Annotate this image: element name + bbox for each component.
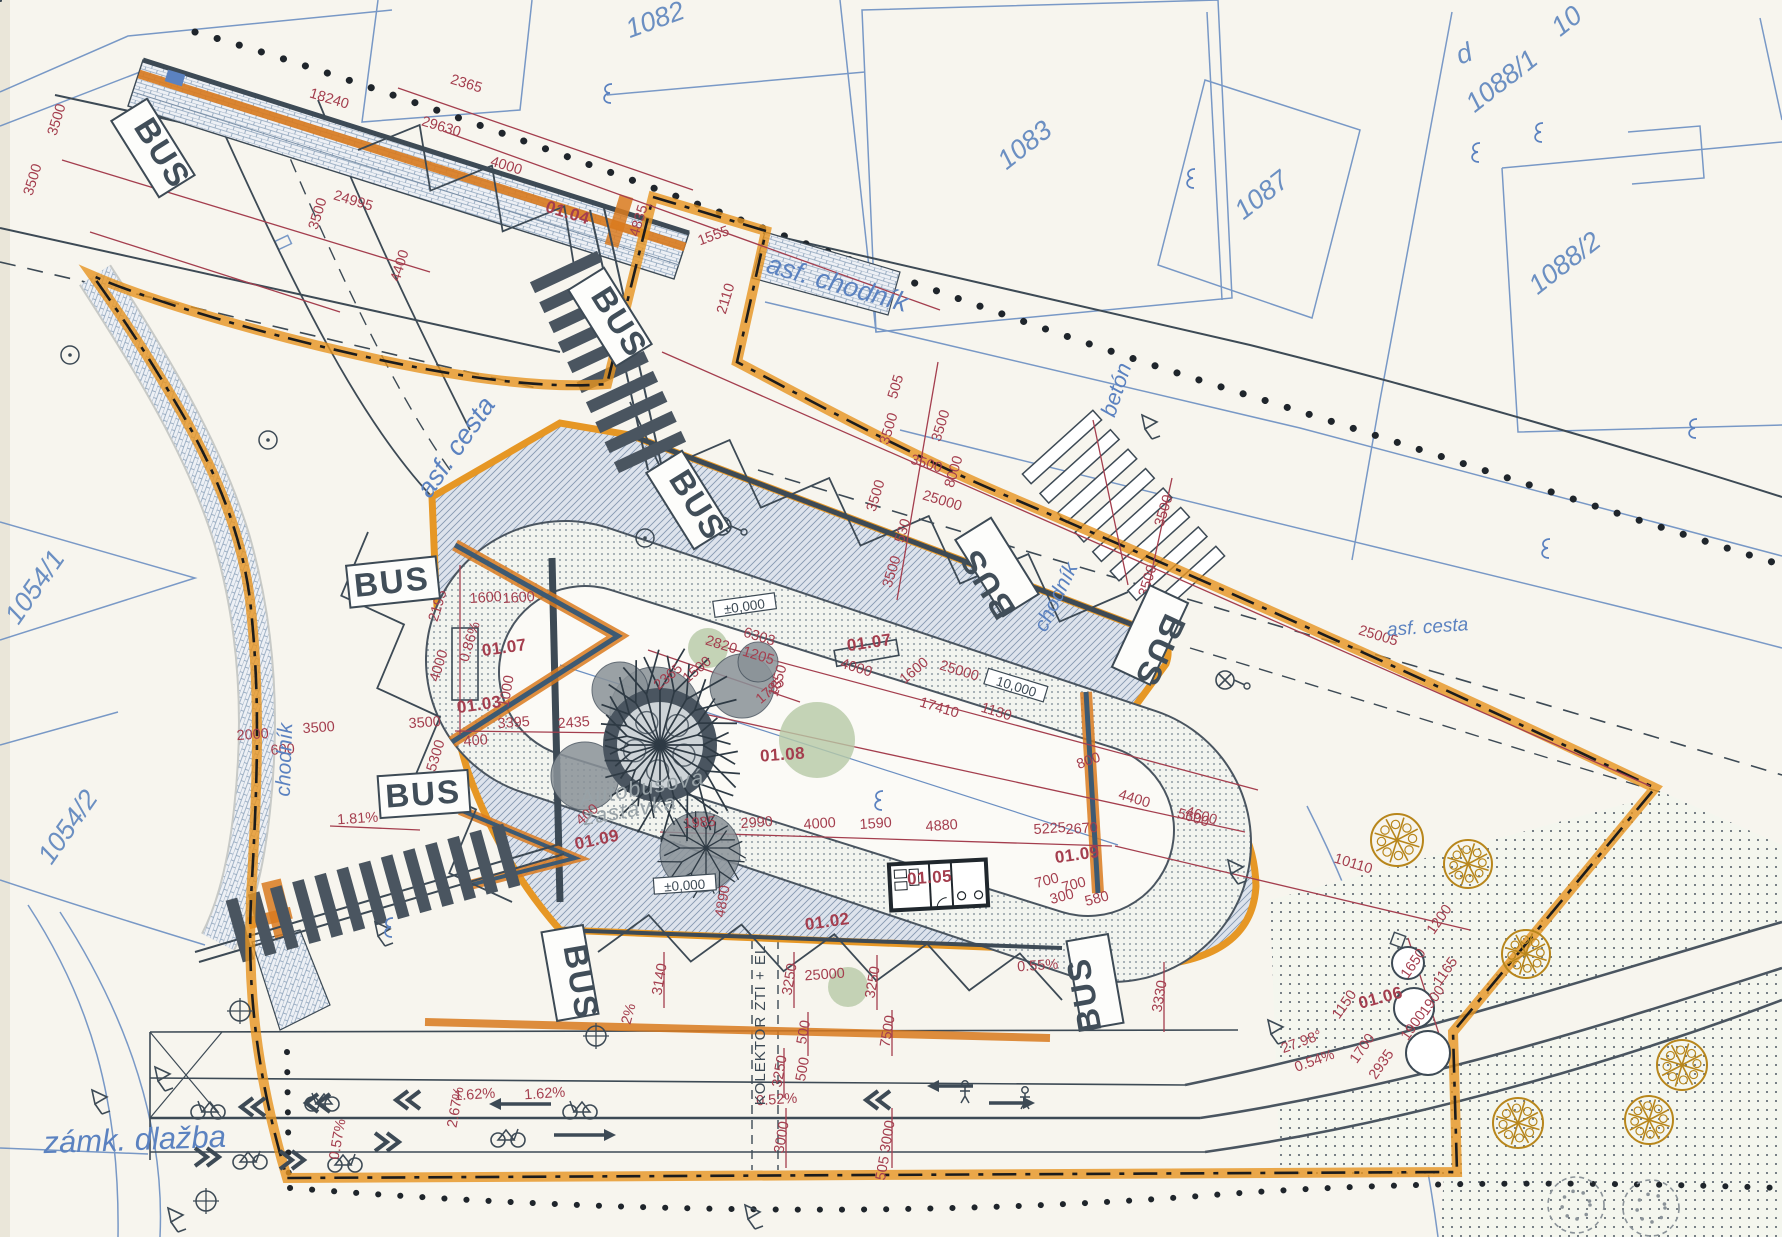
tree-dot	[1560, 1205, 1564, 1209]
dimension-label: 0.55%	[1017, 957, 1059, 976]
tree-dot	[1588, 1203, 1592, 1207]
dimension-label: 1.62%	[524, 1085, 566, 1104]
dimension-label: 400	[463, 732, 488, 750]
dimension-label: 3500	[408, 714, 441, 732]
tree-dot	[1565, 1214, 1569, 1218]
tree-dot	[1640, 1217, 1644, 1221]
level-mark-label: ±0,000	[664, 877, 706, 895]
bus-stop-label: BUS	[352, 559, 431, 604]
dimension-label: 2000	[236, 726, 269, 744]
dimension-label: 3395	[497, 714, 530, 732]
dimension-label: 3500	[302, 719, 335, 737]
tree-dot	[1584, 1213, 1588, 1217]
tree-dot	[1646, 1193, 1650, 1197]
tree-dot	[1656, 1194, 1660, 1198]
tree-dot	[1650, 1220, 1654, 1224]
symbol-dot	[266, 438, 270, 442]
tree-dot	[1581, 1191, 1585, 1195]
dimension-label: 1590	[859, 815, 892, 833]
object-ref-label: 01.08	[759, 743, 805, 765]
tree-dot	[1588, 1199, 1592, 1203]
dimension-label: 5225	[1033, 820, 1066, 838]
site-plan-svg: Autobusová zastávka – situačný výkres (b…	[0, 0, 1782, 1237]
tree-dot	[1638, 1198, 1642, 1202]
dimension-label: 1600	[502, 589, 535, 607]
dimension-label: 2990	[740, 814, 773, 832]
dimension-label: 1.81%	[337, 810, 379, 829]
dimension-label: 1985	[683, 814, 716, 832]
street-label-zamk-dlazba: zámk. dlažba	[42, 1119, 227, 1160]
dimension-label: 2670	[1065, 820, 1098, 838]
tree-dot	[1635, 1208, 1639, 1212]
site-plan-page: Autobusová zastávka – situačný výkres (b…	[0, 0, 1782, 1237]
dimension-label: 25000	[804, 966, 845, 985]
kolektor-label: KOLEKTOR ZTI + EL	[752, 945, 769, 1106]
tree-dot	[1659, 1216, 1663, 1220]
street-label-chodnik-west: chodník	[272, 721, 298, 797]
dimension-label: 4880	[925, 817, 958, 835]
tree-dot	[1575, 1217, 1579, 1221]
tree-dot	[1663, 1206, 1667, 1210]
bus-stop-label: BUS	[384, 772, 462, 814]
green-area-circle	[779, 702, 855, 778]
dimension-label: 1600	[469, 589, 502, 607]
tree-dot	[1663, 1202, 1667, 1206]
tree-dot	[1571, 1190, 1575, 1194]
symbol-dot	[68, 353, 72, 357]
dimension-label: 4000	[803, 815, 836, 833]
symbol-dot	[643, 536, 647, 540]
object-ref-label: 01.05	[906, 866, 952, 888]
dimension-label: 2435	[557, 714, 590, 732]
tree-dot	[1563, 1195, 1567, 1199]
